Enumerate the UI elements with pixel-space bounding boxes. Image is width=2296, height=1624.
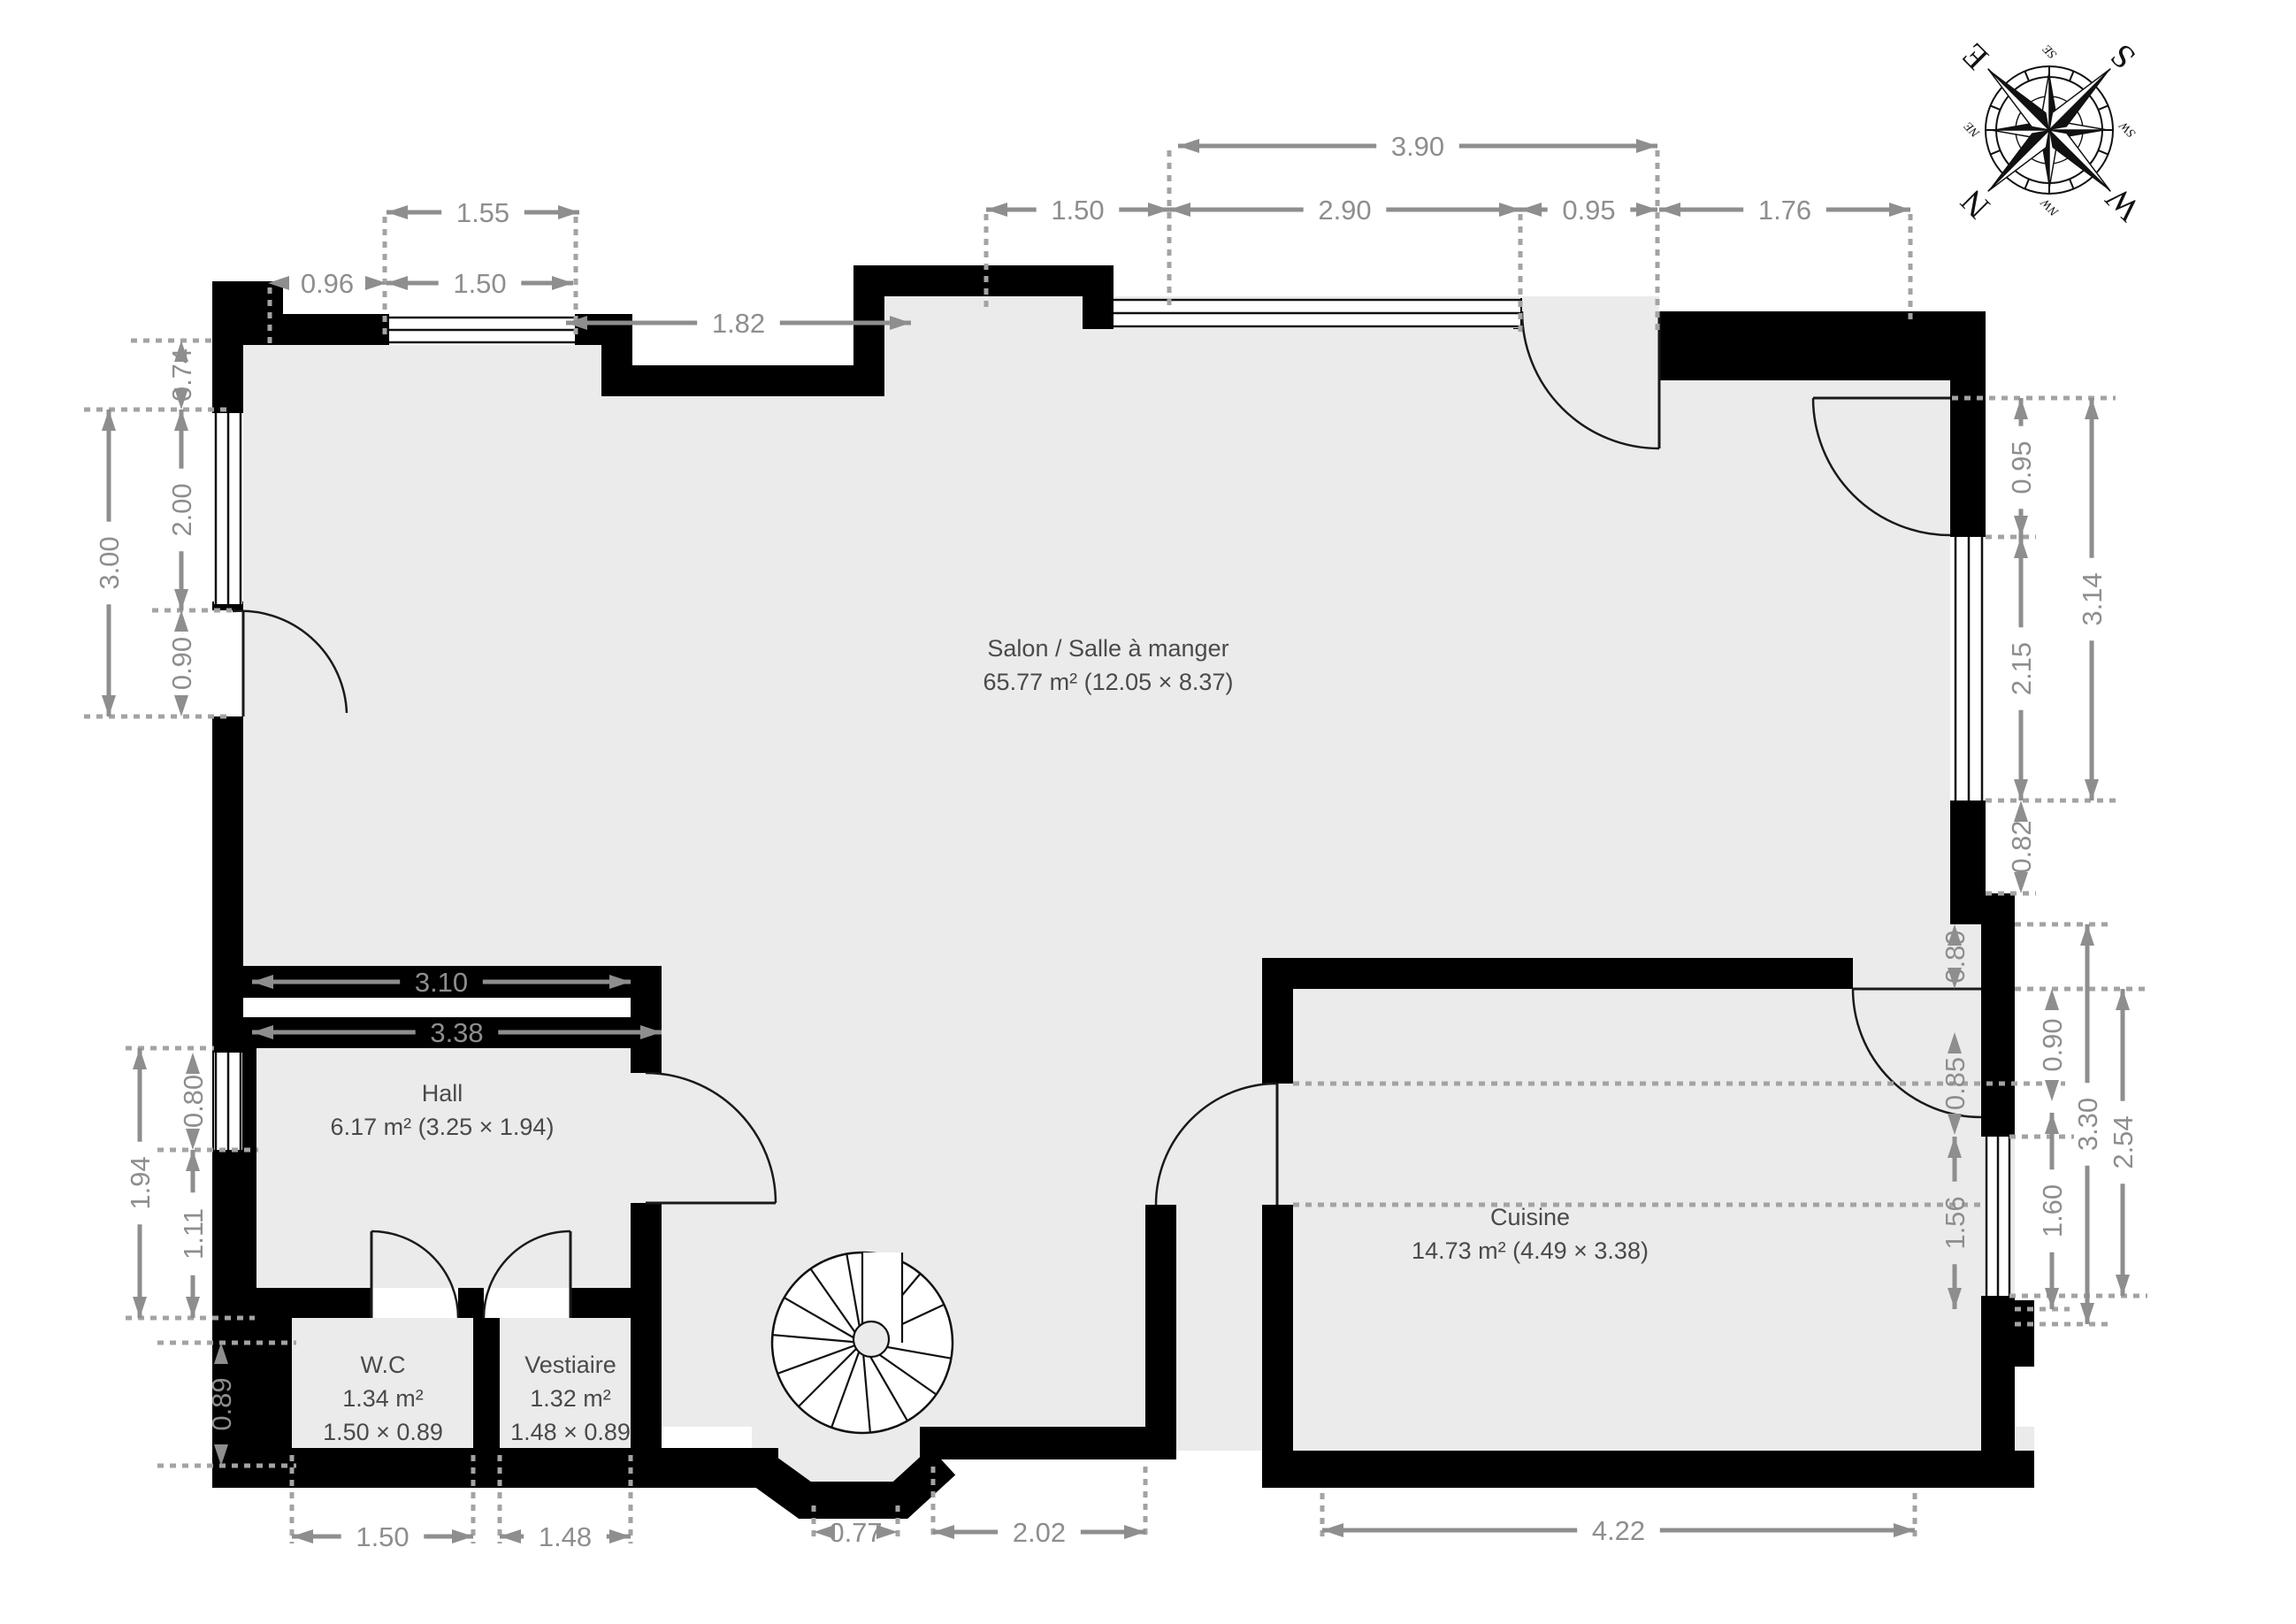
dimension-label: 2.54 [2108, 1115, 2139, 1168]
wall [1981, 1296, 2015, 1451]
dimension: 0.82 [2006, 801, 2037, 893]
dimension-arrowhead [1894, 1523, 1915, 1537]
dimension-label: 2.02 [1013, 1517, 1066, 1548]
wall [570, 1288, 662, 1318]
wall [853, 265, 1114, 296]
dimension-arrowhead [452, 1529, 473, 1544]
dimension-label: 0.96 [301, 268, 354, 299]
dimension-label: 2.90 [1318, 195, 1371, 226]
dimension-arrowhead [1169, 203, 1190, 217]
floor-area [243, 345, 601, 966]
dimension-arrowhead [2045, 1288, 2059, 1309]
dimension: 0.95 [1520, 195, 1657, 226]
dimension-label: 1.48 [539, 1521, 592, 1552]
wall [1083, 265, 1114, 329]
dimension-label: 1.56 [1940, 1196, 1971, 1249]
dimension-arrowhead [133, 1048, 147, 1069]
dimension-arrowhead [986, 203, 1007, 217]
wall [1950, 893, 2015, 924]
dimension-arrowhead [2116, 1275, 2130, 1296]
dimension-arrowhead [1520, 203, 1542, 217]
dimension-arrowhead [292, 1529, 313, 1544]
dimension-label: 1.11 [178, 1208, 209, 1260]
hall-double-wall-slot [252, 998, 631, 1017]
dimension-label: 3.00 [94, 536, 125, 589]
dimension-arrowhead [2014, 801, 2028, 822]
floor-area [884, 296, 1659, 966]
dimension: 0.90 [166, 610, 197, 716]
wall [1293, 958, 1853, 989]
wall [256, 1318, 292, 1448]
dimension-label: 0.90 [2037, 1018, 2068, 1071]
wall [256, 1288, 371, 1318]
dimension: 1.11 [178, 1150, 209, 1318]
dimension-arrowhead [1124, 1525, 1145, 1539]
dimension: 1.50 [986, 195, 1169, 226]
dimension-arrowhead [2014, 398, 2028, 419]
dimension-label: 3.38 [430, 1017, 483, 1048]
wall [1262, 1205, 1293, 1451]
wall [1659, 311, 1986, 380]
dimension-label: 3.90 [1391, 131, 1444, 162]
dimension-arrowhead [2085, 398, 2099, 419]
dimension-label: 1.50 [453, 268, 506, 299]
dimension-arrowhead [174, 410, 188, 431]
dimension: 1.50 [292, 1521, 473, 1552]
dimension: 2.00 [166, 410, 197, 610]
floor-area [601, 396, 884, 966]
dimension-label: 0.89 [1940, 930, 1971, 983]
dimension: 1.76 [1659, 195, 1910, 226]
compass-minor-letter: NE [1962, 119, 1983, 140]
compass-rose: NESWNESESWNW [1881, 0, 2221, 302]
room-name: W.C [361, 1352, 406, 1378]
wall [631, 1203, 662, 1448]
dimension-arrowhead [174, 610, 188, 632]
dimension-arrowhead [2080, 924, 2094, 946]
dimension: 1.48 [500, 1521, 631, 1552]
dimension: 3.90 [1178, 131, 1657, 162]
dimension-arrowhead [186, 1053, 200, 1074]
dimension: 4.22 [1322, 1515, 1915, 1546]
dimension-label: 0.95 [1562, 195, 1615, 226]
wall [212, 716, 243, 1048]
dimension: 3.14 [2077, 398, 2108, 801]
room-measurements: 1.34 m² [342, 1385, 424, 1412]
room-measurements: 1.50 × 0.89 [323, 1419, 443, 1445]
dimension-label: 1.60 [2037, 1184, 2068, 1237]
dimension-arrowhead [2045, 989, 2059, 1010]
room-name: Cuisine [1490, 1204, 1570, 1230]
dimension-arrowhead [2045, 1113, 2059, 1134]
dimension: 0.77 [814, 1517, 898, 1548]
floor-area [1176, 1427, 2034, 1451]
dimension-arrowhead [133, 1297, 147, 1318]
dimension-label: 2.15 [2006, 642, 2037, 695]
dimension-arrowhead [500, 1529, 521, 1544]
dimension-label: 3.30 [2072, 1098, 2103, 1151]
dimension: 1.55 [386, 197, 579, 228]
wall [1981, 924, 2015, 1137]
dimension-arrowhead [1636, 203, 1657, 217]
dimension: 3.00 [94, 410, 125, 716]
dimension-arrowhead [174, 589, 188, 610]
dimension-label: 0.95 [2006, 440, 2037, 494]
dimension-arrowhead [609, 1529, 631, 1544]
room-measurements: 6.17 m² (3.25 × 1.94) [331, 1114, 555, 1140]
dimension-arrowhead [2085, 779, 2099, 801]
compass-minor-letter: NW [2038, 195, 2062, 218]
stair-center-post [853, 1321, 889, 1357]
dimension-arrowhead [2080, 1303, 2094, 1324]
dimension-arrowhead [2014, 779, 2028, 801]
dimension-arrowhead [386, 205, 408, 219]
dimension: 2.90 [1169, 195, 1520, 226]
dimension: 0.89 [1940, 924, 1971, 989]
room-name: Salon / Salle à manger [987, 635, 1228, 662]
dimension-arrowhead [186, 1129, 200, 1150]
dimension-label: 1.55 [456, 197, 509, 228]
dimension-arrowhead [2014, 516, 2028, 537]
dimension: 2.54 [2108, 989, 2139, 1296]
wall [212, 1448, 778, 1488]
dimension: 0.96 [268, 268, 386, 299]
wall [1950, 801, 1986, 893]
dimension-arrowhead [1889, 203, 1910, 217]
dimension: 0.80 [178, 1053, 209, 1150]
dimension-arrowhead [1178, 139, 1199, 153]
wall [1145, 1205, 1176, 1459]
dimension: 1.60 [2037, 1113, 2068, 1309]
wall [920, 1427, 1145, 1459]
spiral-staircase [772, 1252, 953, 1433]
dimension-arrowhead [102, 695, 116, 716]
wall [631, 966, 662, 1073]
dimension: 2.02 [933, 1517, 1145, 1548]
room-name: Vestiaire [524, 1352, 616, 1378]
dimension-arrowhead [2045, 1080, 2059, 1101]
dimension-arrowhead [174, 695, 188, 716]
dimension-arrowhead [102, 410, 116, 431]
floor-area [1659, 380, 1950, 966]
room-measurements: 65.77 m² (12.05 × 8.37) [983, 669, 1234, 695]
dimension-arrowhead [186, 1150, 200, 1171]
dimension-arrowhead [2116, 989, 2130, 1010]
dimension-arrowhead [2014, 537, 2028, 558]
dimension-arrowhead [365, 276, 386, 290]
dimension-arrowhead [1659, 203, 1680, 217]
room-measurements: 14.73 m² (4.49 × 3.38) [1412, 1237, 1649, 1264]
room-name: Hall [422, 1080, 463, 1107]
dimension: 1.94 [125, 1048, 156, 1318]
dimension-label: 0.89 [206, 1377, 237, 1430]
dimension-arrowhead [1636, 139, 1657, 153]
dimension-label: 3.14 [2077, 572, 2108, 625]
wall [212, 314, 389, 345]
dimension: 1.50 [386, 268, 573, 299]
floor-layer [243, 296, 2034, 1490]
dimension-arrowhead [2014, 872, 2028, 893]
floor-plan-page: 3.901.551.500.961.502.900.951.761.823.10… [0, 0, 2296, 1624]
wall [1262, 1451, 2034, 1488]
dimension-arrowhead [1322, 1523, 1343, 1537]
dimension-label: 1.50 [1051, 195, 1104, 226]
dimension-label: 0.77 [829, 1517, 882, 1548]
dimension-arrowhead [386, 276, 408, 290]
dimension-label: 0.74 [166, 349, 197, 402]
room-measurements: 1.48 × 0.89 [510, 1419, 631, 1445]
dimension-label: 4.22 [1592, 1515, 1645, 1546]
dimension-arrowhead [933, 1525, 954, 1539]
dimension-arrowhead [186, 1297, 200, 1318]
wall [212, 281, 283, 314]
dimension-label: 1.82 [712, 308, 765, 339]
dimension-label: 0.90 [166, 637, 197, 690]
wall [458, 1288, 484, 1318]
compass-minor-letter: SE [2040, 42, 2060, 61]
floor-plan-canvas: 3.901.551.500.961.502.900.951.761.823.10… [0, 0, 2296, 1624]
room-measurements: 1.32 m² [530, 1385, 611, 1412]
dimension-label: 3.10 [415, 967, 468, 998]
dimension-label: 1.50 [356, 1521, 409, 1552]
dimension-label: 0.82 [2006, 820, 2037, 873]
dimension: 3.30 [2072, 924, 2103, 1324]
dimension-label: 1.76 [1758, 195, 1811, 226]
dimension: 0.95 [2006, 398, 2037, 537]
wall [473, 1318, 500, 1448]
dimension-label: 0.85 [1940, 1057, 1971, 1110]
compass-minor-letter: SW [2116, 118, 2139, 140]
dimension-label: 2.00 [166, 483, 197, 536]
dimension: 0.74 [166, 341, 197, 410]
dimension-arrowhead [1148, 203, 1169, 217]
dimension-arrowhead [552, 276, 573, 290]
wall [601, 365, 884, 396]
dimension-label: 1.94 [125, 1156, 156, 1209]
dimension-label: 0.80 [178, 1075, 209, 1128]
dimension-arrowhead [1499, 203, 1520, 217]
wall [1950, 380, 1986, 537]
dimension: 2.15 [2006, 537, 2037, 801]
